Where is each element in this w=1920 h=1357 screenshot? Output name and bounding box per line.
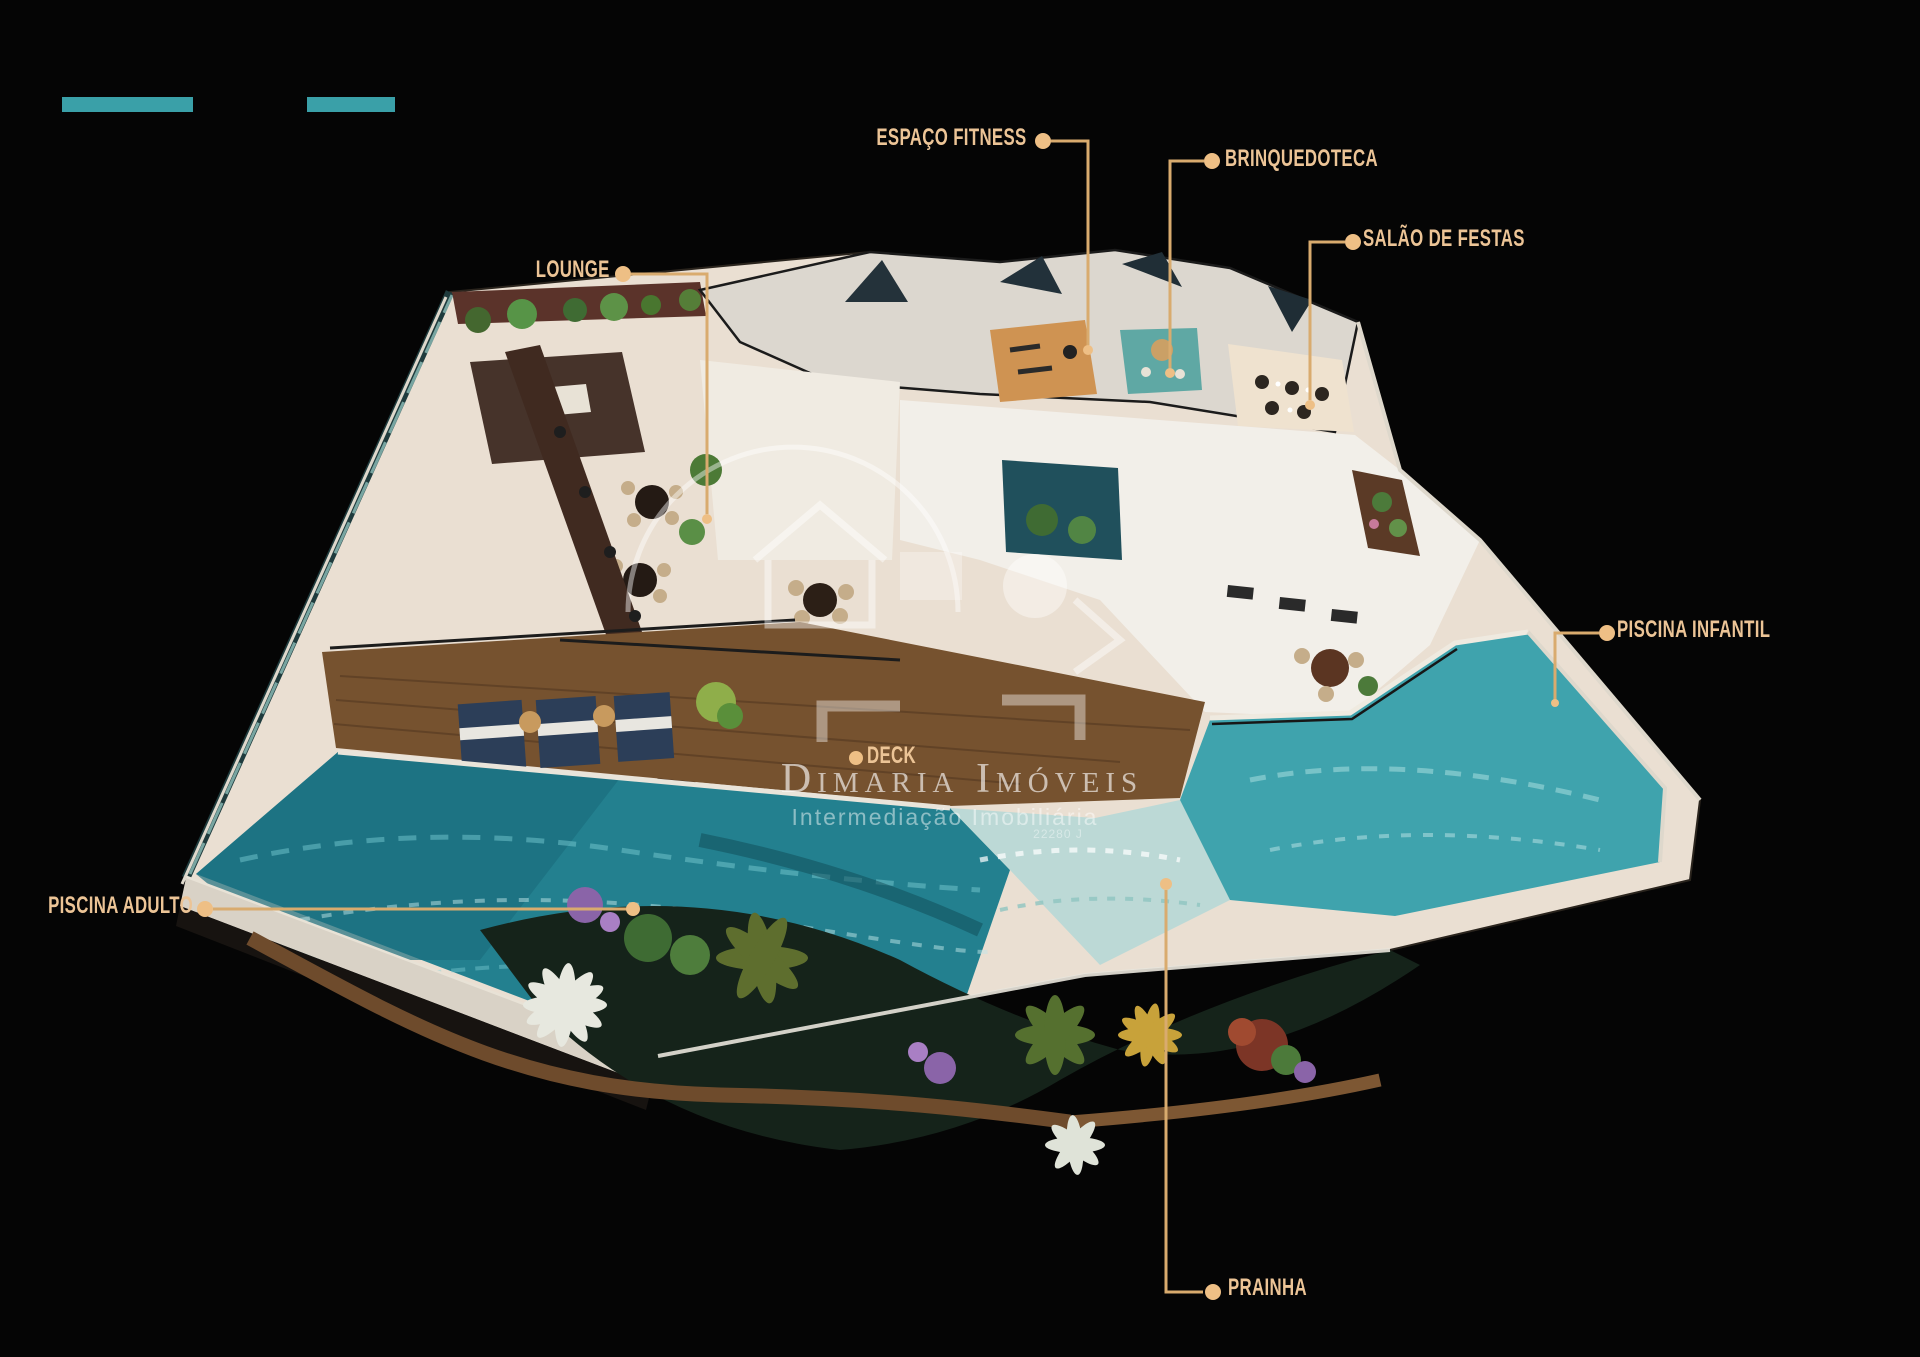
brinquedoteca-room [1120,328,1202,394]
watermark-registration: 22280 J [1033,827,1083,841]
label-lounge: LOUNGE [536,258,610,282]
label-piscina-adulto: PISCINA ADULTO [48,894,193,918]
label-salao-de-festas: SALÃO DE FESTAS [1363,227,1525,251]
deck-plant [717,703,743,729]
render-canvas: Dimaria Imóveis Intermediação Imobiliári… [0,0,1920,1357]
sun-lounger [458,700,527,772]
side-table [519,711,541,733]
brand-bar [62,97,193,112]
label-brinquedoteca: BRINQUEDOTECA [1225,147,1378,171]
marketing-image: Dimaria Imóveis Intermediação Imobiliári… [0,0,1920,1357]
brand-bar [307,97,395,112]
label-prainha: PRAINHA [1228,1276,1307,1300]
watermark-dot [1003,554,1067,618]
sun-lounger [536,696,601,768]
label-espaco-fitness: ESPAÇO FITNESS [877,126,1027,150]
deck-leader [849,751,863,765]
watermark-name: Dimaria Imóveis [781,756,1143,802]
amenity-floor-render [176,250,1700,1176]
label-piscina-infantil: PISCINA INFANTIL [1617,618,1770,642]
fitness-room [990,320,1097,402]
patio-teal-wall [1002,460,1122,560]
brand-bars [62,97,395,112]
side-table [593,705,615,727]
yellow-palm [1118,1002,1182,1068]
label-deck: DECK [867,744,916,768]
sun-lounger [614,692,674,762]
